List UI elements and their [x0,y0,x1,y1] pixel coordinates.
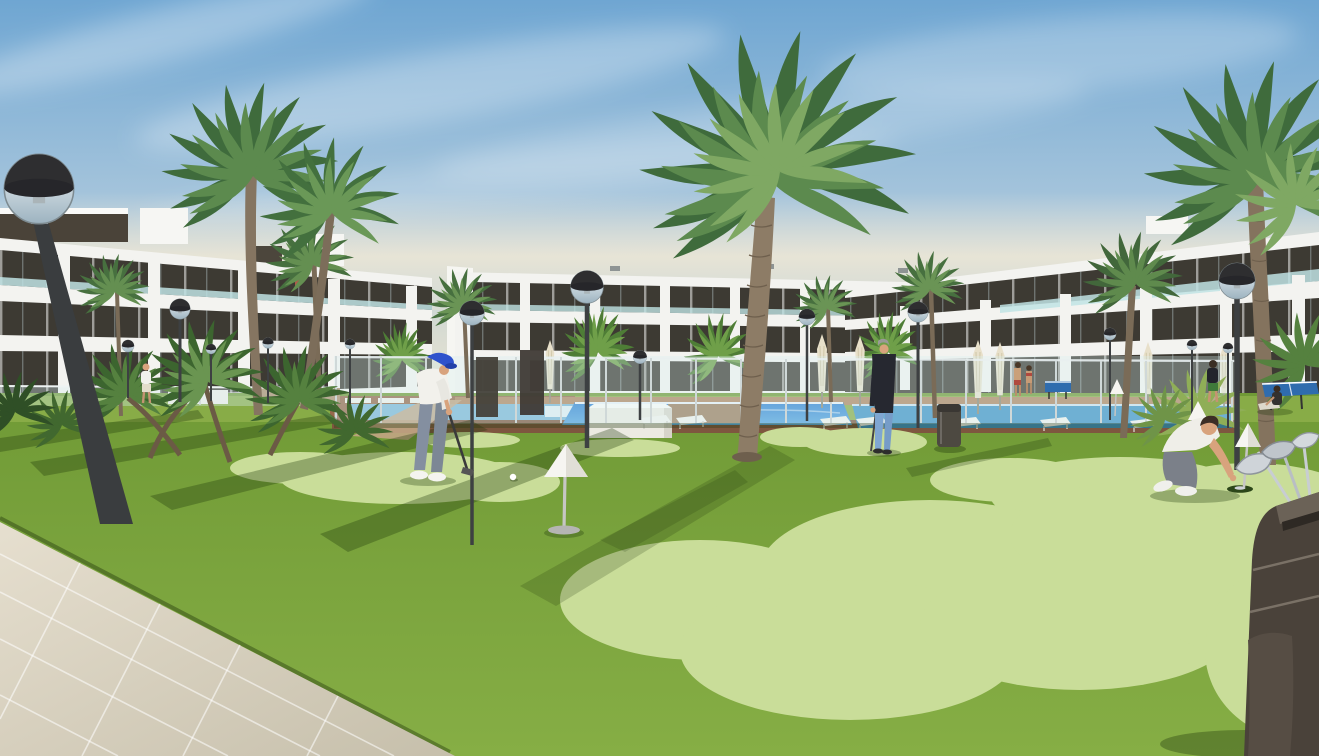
golf-shoe [410,471,428,480]
hand [870,407,875,412]
scene-canvas [0,0,1319,756]
rendered-scene [0,0,1319,756]
privacy-glass-panel [520,350,544,415]
golf-shoe [428,473,446,482]
privacy-glass-panel [476,357,498,417]
cap-brim [445,363,457,369]
hands [446,409,452,415]
stair-tower [140,208,188,244]
shoe [1175,486,1197,496]
arm [872,362,875,406]
trunk-base [732,452,762,462]
bag-pocket [1248,633,1293,756]
head [879,344,888,353]
hand [1230,475,1236,481]
